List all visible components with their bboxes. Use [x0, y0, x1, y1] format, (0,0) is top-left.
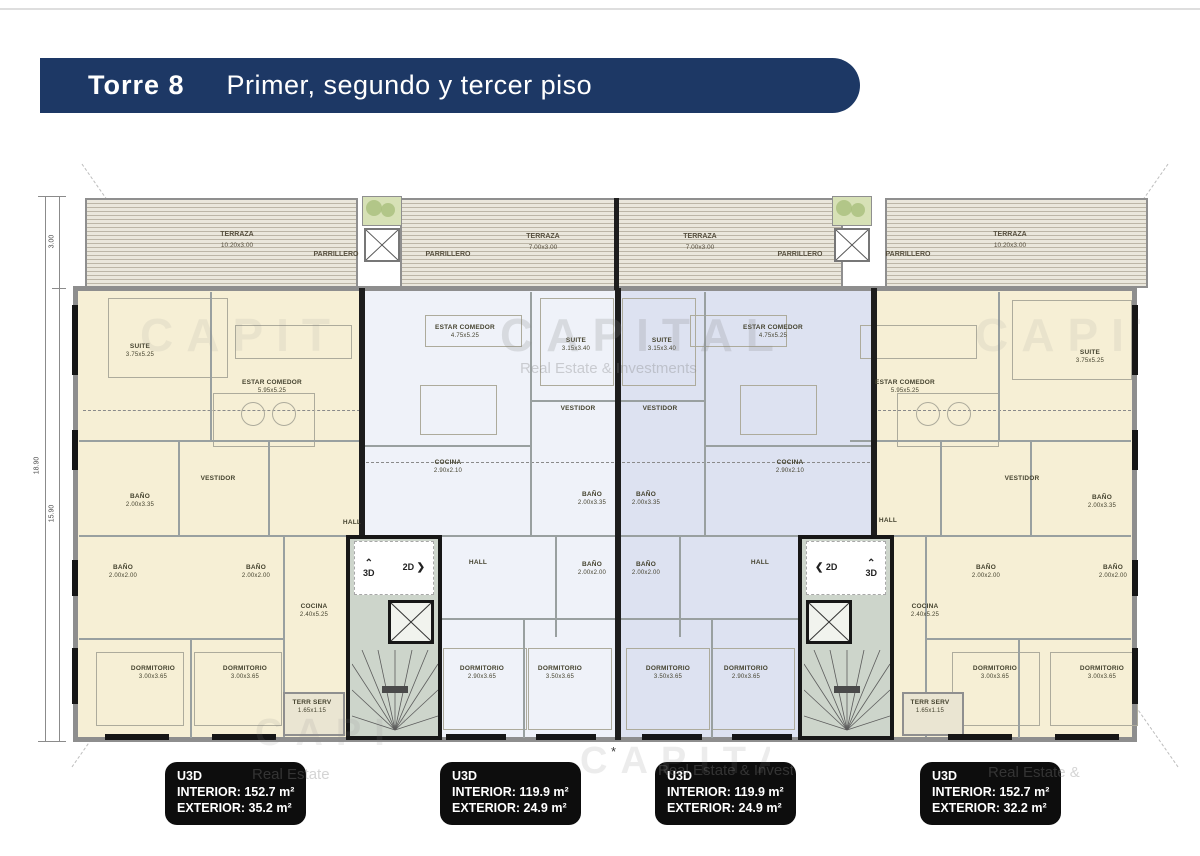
room-name: HALL	[751, 559, 769, 566]
interior-area: INTERIOR: 152.7 m²	[177, 784, 294, 800]
unit-3d-label: 3D	[865, 569, 877, 578]
terrace-label: TERRAZA 10.20x3.00	[955, 230, 1065, 250]
room-name: BAÑO	[1092, 494, 1112, 501]
room-name: DORMITORIO	[460, 665, 504, 672]
room-name: HALL	[343, 519, 361, 526]
terrace-label: TERRAZA 10.20x3.00	[182, 230, 292, 250]
room-label: BAÑO2.00x3.35	[1057, 493, 1147, 511]
room-label: HALL	[322, 518, 382, 527]
floors-subtitle: Primer, segundo y tercer piso	[227, 70, 593, 101]
dimension-tick	[38, 741, 66, 742]
room-name: ESTAR COMEDOR	[242, 379, 302, 386]
room-label: VESTIDOR	[173, 474, 263, 483]
room-name: BAÑO	[1103, 564, 1123, 571]
window	[948, 734, 1012, 740]
wall	[190, 640, 192, 738]
exterior-area: EXTERIOR: 24.9 m²	[667, 800, 784, 816]
chevron-up-icon: ⌃	[365, 559, 373, 569]
watermark-brand: CAPITAL	[975, 308, 1140, 362]
room-label: BAÑO2.00x3.35	[601, 490, 691, 508]
chevron-left-icon: ❮	[815, 562, 823, 573]
furniture-table	[740, 385, 817, 435]
furniture-table	[213, 393, 315, 447]
room-label: ESTAR COMEDOR5.95x5.25	[212, 378, 332, 396]
parrillero-label: PARRILLERO	[291, 251, 381, 258]
elevator	[388, 600, 434, 644]
room-name: VESTIDOR	[201, 475, 236, 482]
room-name: BAÑO	[582, 491, 602, 498]
unit-code: U3D	[452, 769, 569, 783]
room-label: DORMITORIO3.00x3.65	[950, 664, 1040, 682]
wall	[178, 442, 180, 537]
room-name: BAÑO	[113, 564, 133, 571]
room-name: COCINA	[301, 603, 328, 610]
planter-box	[832, 196, 872, 226]
elevator	[806, 600, 852, 644]
elevator-x-icon	[809, 603, 849, 641]
window	[72, 305, 78, 375]
room-size: 2.90x2.10	[403, 467, 493, 476]
room-name: BAÑO	[636, 561, 656, 568]
interior-area: INTERIOR: 119.9 m²	[667, 784, 784, 800]
staircase	[804, 650, 890, 734]
room-size: 2.90x2.10	[745, 467, 835, 476]
room-label: COCINA2.40x5.25	[880, 602, 970, 620]
room-label: DORMITORIO3.00x3.65	[200, 664, 290, 682]
unit-area-card: U3D INTERIOR: 119.9 m² EXTERIOR: 24.9 m²	[440, 762, 581, 825]
room-name: VESTIDOR	[561, 405, 596, 412]
window	[105, 734, 169, 740]
room-label: HALL	[448, 558, 508, 567]
wall	[706, 445, 874, 447]
terrace-size: 10.20x3.00	[955, 241, 1065, 251]
wall	[530, 400, 618, 402]
room-label: VESTIDOR	[533, 404, 623, 413]
room-label: BAÑO2.00x3.35	[95, 492, 185, 510]
wall	[925, 638, 1131, 640]
terrace-name: TERRAZA	[220, 231, 253, 238]
room-name: HALL	[879, 517, 897, 524]
room-name: BAÑO	[246, 564, 266, 571]
exterior-area: EXTERIOR: 35.2 m²	[177, 800, 294, 816]
wall	[679, 537, 681, 637]
wall	[435, 618, 618, 620]
top-divider	[0, 8, 1200, 10]
window	[72, 430, 78, 470]
room-size: 3.50x3.65	[623, 673, 713, 682]
title-banner: Torre 8 Primer, segundo y tercer piso	[40, 58, 860, 113]
wall	[79, 638, 285, 640]
interior-area: INTERIOR: 152.7 m²	[932, 784, 1049, 800]
furniture-bed	[443, 648, 527, 730]
room-label: DORMITORIO3.50x3.65	[623, 664, 713, 682]
watermark-brand: CAPITAL	[500, 308, 780, 362]
core-direction-box: ⌃ 3D 2D ❯	[354, 541, 434, 595]
wall	[850, 440, 1131, 442]
terrace-size: 7.00x3.00	[488, 243, 598, 253]
unit-3d-pointer: ⌃ 3D	[865, 559, 877, 578]
unit-2d-label: 2D ❯	[403, 563, 425, 573]
furniture-table	[420, 385, 497, 435]
parrillero-label: PARRILLERO	[403, 251, 493, 258]
watermark-brand: CAPITAL	[140, 308, 330, 362]
terrace-name: TERRAZA	[526, 233, 559, 240]
parrillero-label: PARRILLERO	[755, 251, 845, 258]
room-name: TERR SERV	[911, 699, 950, 706]
terrace-label: TERRAZA 7.00x3.00	[488, 232, 598, 252]
dimension-tick	[38, 196, 66, 197]
exterior-area: EXTERIOR: 24.9 m²	[452, 800, 569, 816]
room-size: 2.00x3.35	[601, 499, 691, 508]
wall	[618, 618, 801, 620]
unit-2d-label: ❮ 2D	[815, 563, 837, 573]
dimension-value: 15.90	[49, 494, 56, 534]
unit-2d-pointer: ❮ 2D	[815, 563, 837, 573]
terrace-deck-2-3	[400, 198, 843, 288]
room-size: 2.00x2.00	[211, 572, 301, 581]
room-label: DORMITORIO2.90x3.65	[701, 664, 791, 682]
parrillero-label: PARRILLERO	[863, 251, 953, 258]
wall	[268, 442, 270, 537]
plant-icon	[851, 203, 865, 217]
watermark-tagline: Real Estate & Investments	[520, 360, 750, 377]
plant-icon	[381, 203, 395, 217]
room-size: 3.00x3.65	[950, 673, 1040, 682]
furniture-cooktop	[272, 402, 296, 426]
room-size: 3.00x3.65	[108, 673, 198, 682]
wall	[1030, 442, 1032, 537]
room-size: 2.00x2.00	[601, 569, 691, 578]
room-size: 3.00x3.65	[1057, 673, 1147, 682]
room-label: TERR SERV1.65x1.15	[890, 698, 970, 716]
room-size: 5.95x5.25	[845, 387, 965, 396]
wall	[940, 442, 942, 537]
chevron-right-icon: ❯	[417, 562, 425, 573]
window	[1055, 734, 1119, 740]
wall	[555, 537, 557, 637]
dimension-tick	[52, 288, 66, 289]
room-label: BAÑO2.00x2.00	[211, 563, 301, 581]
room-size: 2.90x3.65	[437, 673, 527, 682]
wall	[618, 400, 706, 402]
terrace-label: TERRAZA 7.00x3.00	[645, 232, 755, 252]
watermark-tagline: Real Estate & Investments	[252, 766, 332, 783]
room-label: COCINA2.40x5.25	[269, 602, 359, 620]
room-label: BAÑO2.00x2.00	[941, 563, 1031, 581]
room-name: VESTIDOR	[643, 405, 678, 412]
furniture-sofa	[860, 325, 977, 359]
room-size: 2.00x2.00	[78, 572, 168, 581]
elevator-x-icon	[391, 603, 431, 641]
room-name: BAÑO	[976, 564, 996, 571]
room-name: DORMITORIO	[131, 665, 175, 672]
room-name: BAÑO	[582, 561, 602, 568]
plant-icon	[836, 200, 852, 216]
room-name: COCINA	[777, 459, 804, 466]
room-size: 2.00x3.35	[1057, 502, 1147, 511]
wall	[362, 445, 530, 447]
unit-2d-text: 2D	[403, 562, 415, 572]
room-name: DORMITORIO	[724, 665, 768, 672]
room-label: VESTIDOR	[977, 474, 1067, 483]
room-name: VESTIDOR	[1005, 475, 1040, 482]
terrace-name: TERRAZA	[683, 233, 716, 240]
room-name: DORMITORIO	[223, 665, 267, 672]
wall	[1018, 640, 1020, 738]
room-size: 2.90x3.65	[701, 673, 791, 682]
wall	[79, 440, 360, 442]
floorplan-page: Torre 8 Primer, segundo y tercer piso TE…	[0, 0, 1200, 856]
room-name: DORMITORIO	[538, 665, 582, 672]
wall	[862, 535, 1131, 537]
interior-area: INTERIOR: 119.9 m²	[452, 784, 569, 800]
room-name: DORMITORIO	[973, 665, 1017, 672]
room-label: COCINA2.90x2.10	[745, 458, 835, 476]
furniture-bed	[528, 648, 612, 730]
dimension-line	[59, 196, 60, 742]
room-label: ESTAR COMEDOR5.95x5.25	[845, 378, 965, 396]
plant-icon	[366, 200, 382, 216]
furniture-cooktop	[947, 402, 971, 426]
dimension-value: 3.00	[49, 222, 56, 262]
room-size: 2.00x2.00	[1068, 572, 1158, 581]
unit-3d-label: 3D	[363, 569, 375, 578]
room-label: BAÑO2.00x2.00	[601, 560, 691, 578]
watermark-tagline: Real Estate & Investments	[658, 762, 793, 779]
furniture-bed	[711, 648, 795, 730]
unit-3d-pointer: ⌃ 3D	[363, 559, 375, 578]
room-name: COCINA	[912, 603, 939, 610]
furniture-cooktop	[241, 402, 265, 426]
room-name: DORMITORIO	[1080, 665, 1124, 672]
tower-title: Torre 8	[88, 70, 185, 101]
room-label: DORMITORIO3.00x3.65	[1057, 664, 1147, 682]
chevron-up-icon: ⌃	[867, 559, 875, 569]
room-name: ESTAR COMEDOR	[435, 324, 495, 331]
room-size: 2.40x5.25	[880, 611, 970, 620]
terrace-size: 10.20x3.00	[182, 241, 292, 251]
furniture-bed	[626, 648, 710, 730]
core-direction-box: ❮ 2D ⌃ 3D	[806, 541, 886, 595]
room-name: DORMITORIO	[646, 665, 690, 672]
watermark-brand: CAPITAL	[255, 712, 405, 755]
watermark-tagline: Real Estate & Investments	[988, 764, 1080, 781]
room-label: BAÑO2.00x2.00	[1068, 563, 1158, 581]
room-label: DORMITORIO3.50x3.65	[515, 664, 605, 682]
room-label: BAÑO2.00x2.00	[78, 563, 168, 581]
dimension-line	[45, 196, 46, 742]
wall	[79, 535, 348, 537]
room-size: 1.65x1.15	[890, 707, 970, 716]
room-size: 3.50x3.65	[515, 673, 605, 682]
window	[1132, 430, 1138, 470]
planter-box	[362, 196, 402, 226]
window	[72, 648, 78, 704]
room-label: COCINA2.90x2.10	[403, 458, 493, 476]
room-name: BAÑO	[636, 491, 656, 498]
room-label: HALL	[730, 558, 790, 567]
room-name: TERR SERV	[293, 699, 332, 706]
exterior-area: EXTERIOR: 32.2 m²	[932, 800, 1049, 816]
room-name: COCINA	[435, 459, 462, 466]
room-label: DORMITORIO3.00x3.65	[108, 664, 198, 682]
unit-2d-pointer: 2D ❯	[403, 563, 425, 573]
room-size: 2.00x3.35	[95, 501, 185, 510]
unit-2d-text: 2D	[826, 562, 838, 572]
terrace-name: TERRAZA	[993, 231, 1026, 238]
window	[446, 734, 506, 740]
terrace-size: 7.00x3.00	[645, 243, 755, 253]
dimension-value: 18.90	[34, 446, 41, 486]
room-size: 2.40x5.25	[269, 611, 359, 620]
room-label: DORMITORIO2.90x3.65	[437, 664, 527, 682]
room-name: BAÑO	[130, 493, 150, 500]
room-size: 3.00x3.65	[200, 673, 290, 682]
terrace-center-wall	[614, 198, 619, 290]
room-size: 2.00x2.00	[941, 572, 1031, 581]
room-name: ESTAR COMEDOR	[875, 379, 935, 386]
room-label: VESTIDOR	[615, 404, 705, 413]
room-size: 5.95x5.25	[212, 387, 332, 396]
room-label: HALL	[858, 516, 918, 525]
room-name: HALL	[469, 559, 487, 566]
furniture-cooktop	[916, 402, 940, 426]
